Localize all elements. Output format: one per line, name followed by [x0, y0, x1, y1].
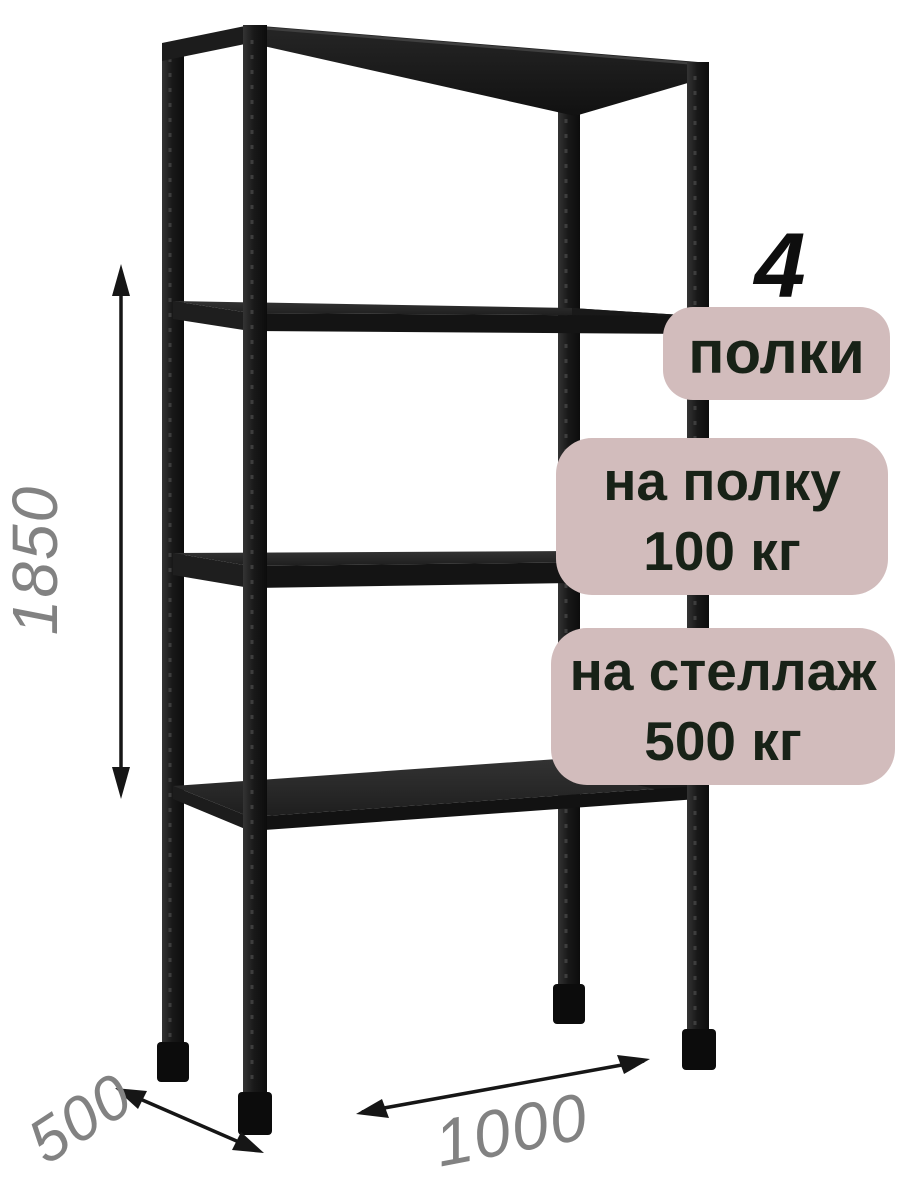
rack-shelf-top: [162, 25, 698, 116]
rack-foot-back-left: [157, 1042, 189, 1082]
rack-foot-back-right: [553, 984, 585, 1024]
badge-shelf-count-label: полки: [688, 315, 864, 391]
badge-rack-capacity-line1: на стеллаж: [570, 637, 877, 707]
rack-post-front-left: [243, 25, 267, 1095]
depth-dimension-label: 500: [16, 1060, 145, 1177]
badge-shelf-count: полки: [663, 307, 890, 400]
height-dimension-label: 1850: [0, 485, 71, 635]
badge-shelf-capacity: на полку 100 кг: [556, 438, 888, 595]
badge-rack-capacity: на стеллаж 500 кг: [551, 628, 895, 785]
rack-post-back-left: [162, 43, 184, 1045]
shelf-count-number: 4: [737, 216, 823, 316]
arrow-up-icon: [112, 264, 130, 296]
height-dimension-arrow: [112, 264, 130, 799]
arrow-downright-icon: [232, 1132, 264, 1153]
badge-shelf-capacity-line2: 100 кг: [643, 517, 800, 587]
width-dimension-label: 1000: [429, 1078, 595, 1180]
badge-rack-capacity-line2: 500 кг: [644, 707, 801, 777]
rack-foot-front-left: [238, 1092, 272, 1135]
badge-shelf-capacity-line1: на полку: [603, 447, 841, 517]
arrow-right-icon: [617, 1055, 650, 1074]
product-image: 1850 500 1000 4 полки на полку 100 кг на…: [0, 0, 900, 1200]
rack-foot-front-right: [682, 1029, 716, 1070]
shelving-rack-illustration: 1850 500 1000: [0, 0, 900, 1200]
arrow-down-icon: [112, 767, 130, 799]
arrow-left-icon: [356, 1099, 389, 1118]
